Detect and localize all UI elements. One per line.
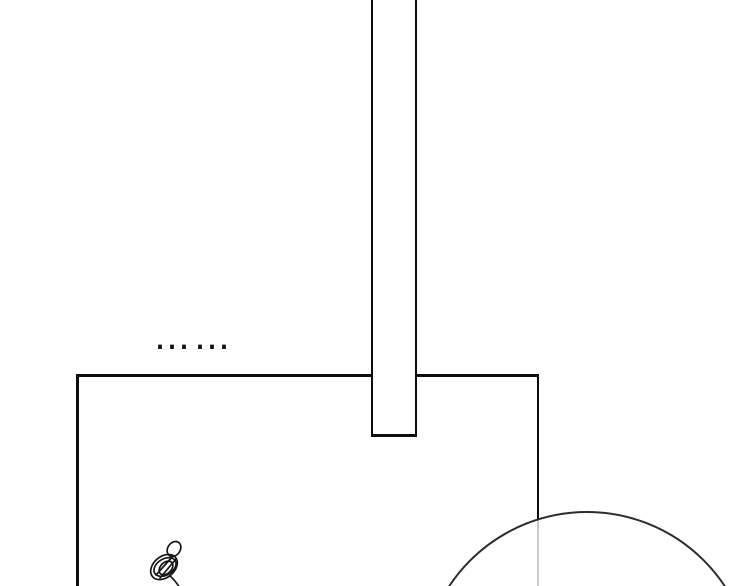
panel-frame <box>76 374 539 586</box>
webtoon-panel-canvas: …… <box>0 0 750 586</box>
dialogue-ellipsis: …… <box>154 320 234 356</box>
pole-shape <box>371 0 417 437</box>
